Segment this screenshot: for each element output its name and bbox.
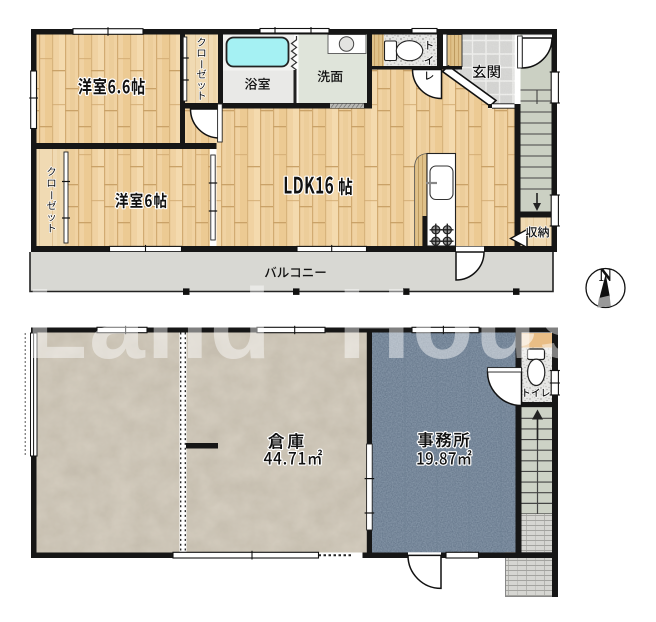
- svg-text:House: House: [338, 268, 654, 380]
- svg-text:Land: Land: [26, 268, 273, 380]
